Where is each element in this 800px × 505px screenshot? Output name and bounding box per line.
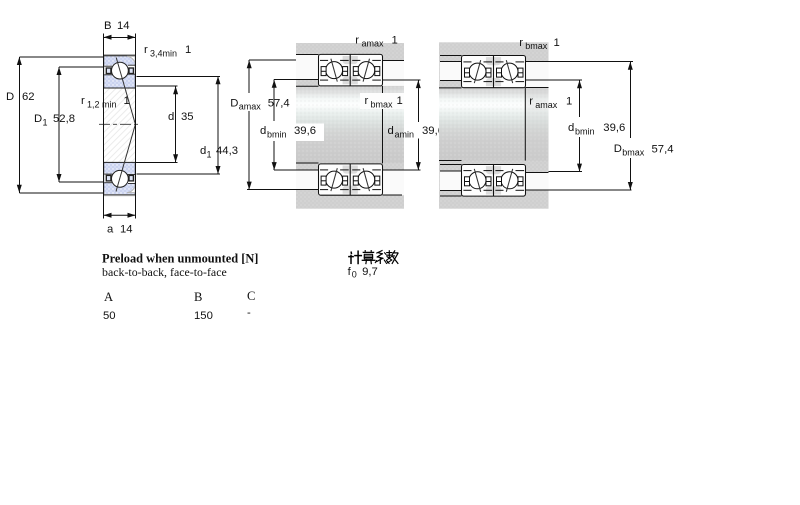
svg-text:amax: amax — [362, 39, 385, 49]
svg-text:9,7: 9,7 — [362, 266, 378, 278]
svg-text:bmax: bmax — [622, 147, 645, 157]
svg-text:62: 62 — [22, 91, 35, 103]
svg-text:1: 1 — [566, 96, 572, 108]
svg-text:57,4: 57,4 — [652, 144, 674, 156]
svg-text:amax: amax — [239, 102, 262, 112]
svg-text:bmax: bmax — [525, 41, 548, 51]
svg-text:amax: amax — [535, 100, 558, 110]
svg-text:d: d — [168, 111, 174, 123]
svg-text:d: d — [568, 122, 574, 134]
svg-text:1: 1 — [124, 95, 130, 107]
svg-text:r: r — [355, 35, 359, 47]
svg-text:44,3: 44,3 — [216, 145, 238, 157]
svg-text:Preload when unmounted [N]: Preload when unmounted [N] — [102, 252, 258, 266]
svg-text:D: D — [614, 143, 622, 155]
svg-text:back-to-back, face-to-face: back-to-back, face-to-face — [102, 265, 227, 279]
svg-text:r: r — [529, 96, 533, 108]
svg-text:a: a — [107, 224, 114, 236]
svg-text:r: r — [144, 44, 148, 56]
svg-text:d: d — [200, 145, 206, 157]
svg-text:52,8: 52,8 — [53, 113, 75, 125]
svg-text:D: D — [230, 97, 238, 109]
svg-text:B: B — [104, 20, 112, 32]
svg-text:d: d — [388, 125, 394, 137]
svg-text:39,6: 39,6 — [603, 122, 625, 134]
svg-text:r: r — [365, 95, 369, 107]
svg-text:50: 50 — [103, 310, 116, 322]
svg-text:0: 0 — [352, 270, 357, 280]
svg-text:bmin: bmin — [575, 127, 595, 137]
svg-text:1: 1 — [392, 35, 398, 47]
svg-text:1,2 min: 1,2 min — [87, 100, 117, 110]
svg-text:150: 150 — [194, 310, 213, 322]
svg-text:14: 14 — [120, 224, 133, 236]
svg-text:3,4min: 3,4min — [150, 49, 177, 59]
svg-text:39,6: 39,6 — [294, 125, 316, 137]
svg-text:1: 1 — [43, 118, 48, 128]
svg-text:r: r — [519, 37, 523, 49]
svg-text:bmin: bmin — [267, 130, 287, 140]
svg-text:1: 1 — [207, 150, 212, 160]
svg-text:1: 1 — [397, 95, 403, 107]
svg-text:D: D — [6, 91, 14, 103]
svg-text:B: B — [194, 290, 202, 304]
svg-text:bmax: bmax — [371, 100, 394, 110]
svg-text:C: C — [247, 289, 255, 303]
svg-text:1: 1 — [554, 37, 560, 49]
svg-text:-: - — [247, 307, 251, 319]
svg-text:r: r — [81, 95, 85, 107]
svg-text:57,4: 57,4 — [268, 97, 290, 109]
svg-text:1: 1 — [185, 44, 191, 56]
svg-text:amin: amin — [395, 130, 415, 140]
svg-text:14: 14 — [117, 20, 130, 32]
svg-text:35: 35 — [181, 111, 194, 123]
svg-text:D: D — [34, 113, 42, 125]
svg-text:d: d — [260, 125, 266, 137]
svg-text:A: A — [104, 290, 113, 304]
